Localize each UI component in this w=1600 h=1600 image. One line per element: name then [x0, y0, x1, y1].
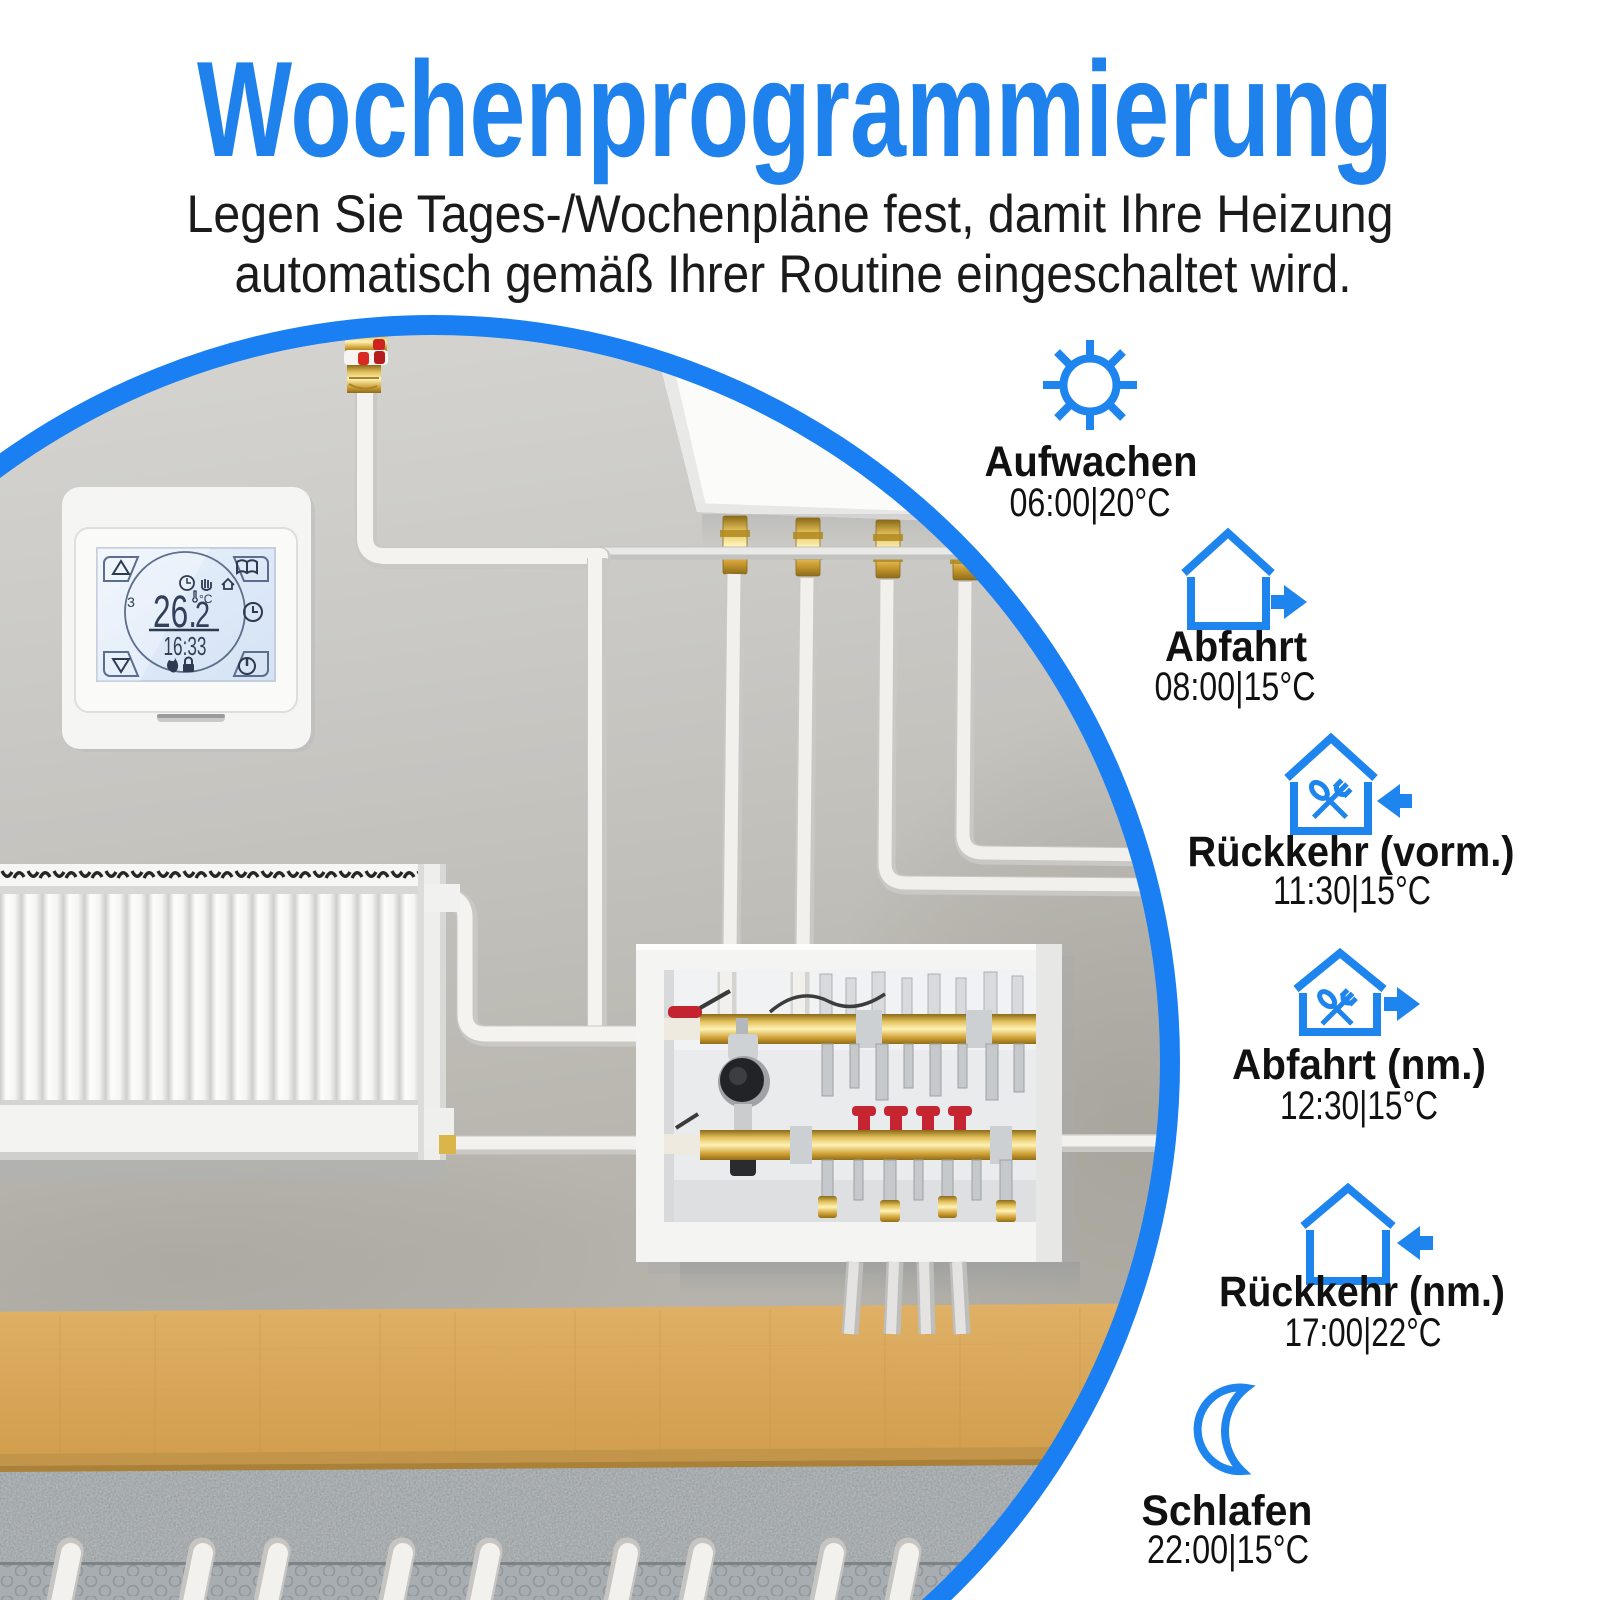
svg-text:Abfahrt: Abfahrt: [1165, 623, 1307, 671]
svg-text:08:00|15°C: 08:00|15°C: [1155, 665, 1316, 709]
svg-text:Wochenprogrammierung: Wochenprogrammierung: [197, 33, 1393, 185]
svg-text:12:30|15°C: 12:30|15°C: [1280, 1084, 1438, 1128]
svg-text:Legen Sie Tages-/Wochenpläne f: Legen Sie Tages-/Wochenpläne fest, damit…: [187, 185, 1394, 244]
svg-text:3: 3: [127, 594, 135, 610]
svg-text:17:00|22°C: 17:00|22°C: [1285, 1311, 1442, 1355]
svg-text:Rückkehr (nm.): Rückkehr (nm.): [1219, 1268, 1505, 1316]
svg-text:11:30|15°C: 11:30|15°C: [1273, 869, 1431, 913]
svg-text:06:00|20°C: 06:00|20°C: [1010, 481, 1171, 525]
svg-text:22:00|15°C: 22:00|15°C: [1147, 1528, 1309, 1572]
svg-text:Abfahrt (nm.): Abfahrt (nm.): [1232, 1041, 1486, 1089]
svg-text:Aufwachen: Aufwachen: [985, 438, 1198, 486]
svg-text:°C: °C: [199, 592, 213, 606]
svg-text:automatisch gemäß Ihrer Routin: automatisch gemäß Ihrer Routine eingesch…: [235, 245, 1352, 304]
svg-text:16:33: 16:33: [164, 631, 207, 661]
